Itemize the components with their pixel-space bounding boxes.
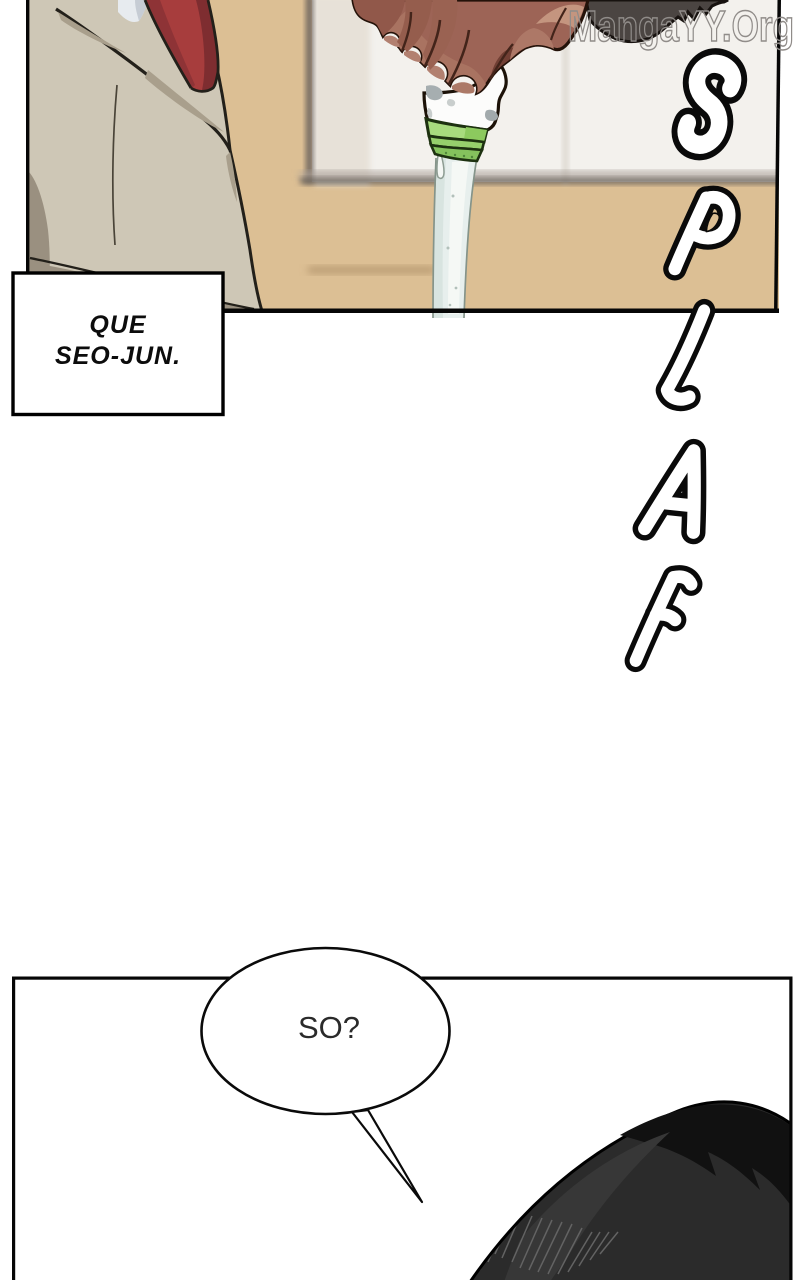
svg-text:SO?: SO? bbox=[298, 1010, 360, 1045]
svg-text:MangaYY.Org: MangaYY.Org bbox=[568, 2, 794, 51]
svg-text:QUE: QUE bbox=[89, 311, 147, 339]
svg-text:SEO-JUN.: SEO-JUN. bbox=[55, 342, 181, 370]
